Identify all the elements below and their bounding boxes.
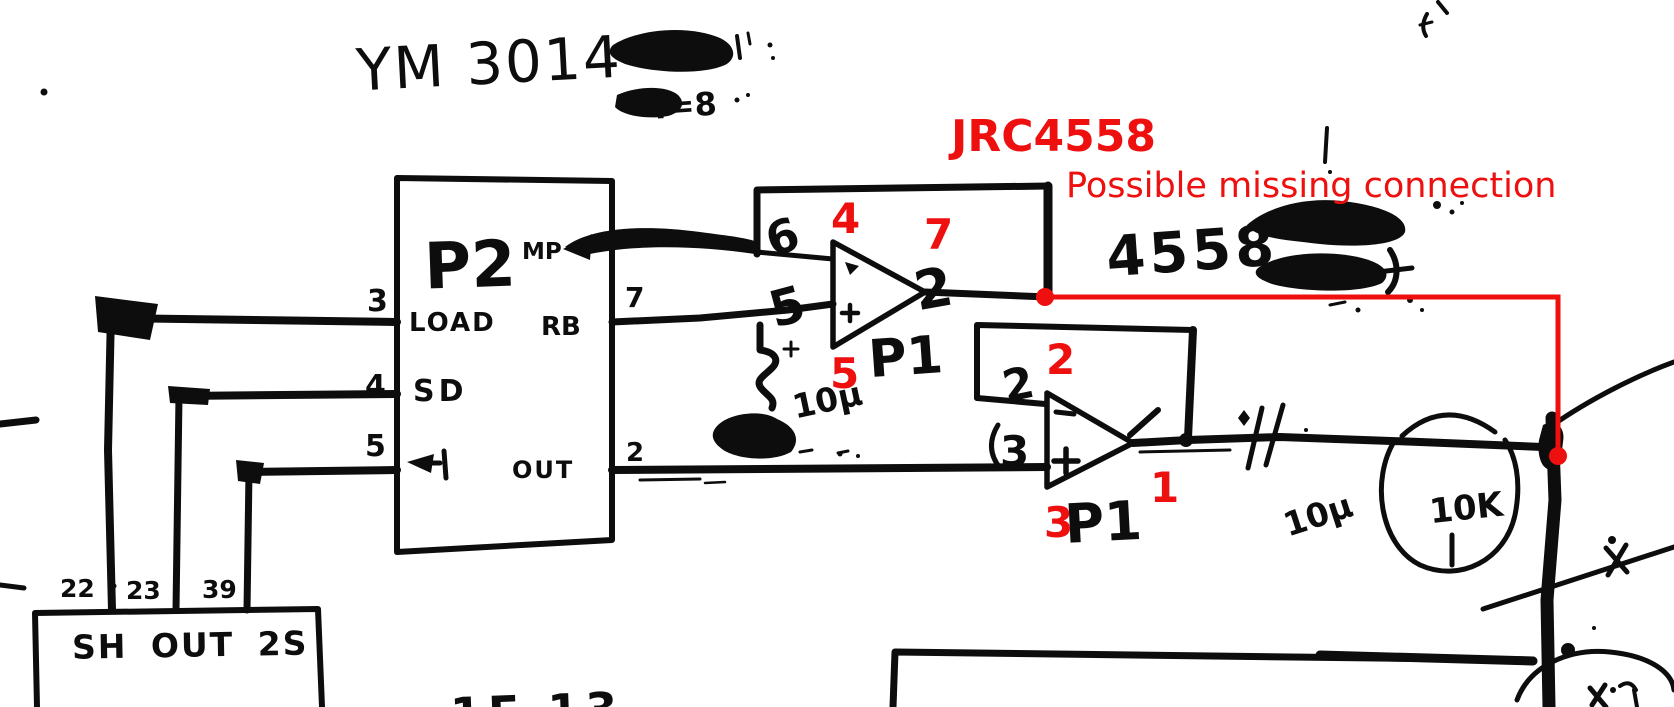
chip-designator: P2 <box>423 227 517 304</box>
shift-box-pin23: 23 <box>126 576 161 605</box>
chip-load-label: LOAD <box>409 308 496 338</box>
blackout-scribble <box>1247 128 1464 313</box>
opamp2-output-wire <box>1133 405 1543 468</box>
resistor-blob: 10K <box>1381 415 1517 571</box>
annotation-pin-op2-noninv: 3 <box>1044 498 1073 547</box>
resistor-value: 10K <box>1427 484 1506 532</box>
opamp2-hw-noninv-pin: 3 <box>1000 427 1029 476</box>
pin1-arrow-mark <box>407 451 446 478</box>
plus-symbol <box>842 305 858 321</box>
capacitor2-value: 10μ <box>1279 486 1358 545</box>
ym3014-chip: P2 MP LOAD RB SD OUT 3 4 5 7 2 <box>365 178 757 552</box>
apex-slash-mark <box>1130 410 1158 435</box>
annotation-pin-op1-noninv: 5 <box>830 349 859 398</box>
shift-box-label: SH OUT 2S <box>72 624 309 667</box>
chip-pin7-label: 7 <box>625 281 644 314</box>
chip-pin4-label: 4 <box>365 369 386 404</box>
annotation-note: Possible missing connection <box>1066 166 1556 206</box>
missing-connection-node-start <box>1036 288 1054 306</box>
chip-rb-label: RB <box>541 312 581 342</box>
opamp2: 2 3 P1 <box>991 357 1158 556</box>
annotation-ic-label: JRC4558 <box>948 111 1156 162</box>
opamp2-label: P1 <box>1063 489 1143 556</box>
schematic-canvas: YM 3014 4=8 P2 MP LOAD RB SD OUT 3 4 5 7… <box>0 0 1674 707</box>
opamp1-hw-out-pin: 2 <box>909 255 957 324</box>
opamp1-hw-noninv-pin: 5 <box>763 274 812 339</box>
scanned-schematic-page: YM 3014 4=8 P2 MP LOAD RB SD OUT 3 4 5 7… <box>0 0 1674 707</box>
paren-mark <box>991 425 1000 468</box>
shift-box-pin39: 39 <box>202 575 237 604</box>
annotation-pin-op2-inv: 2 <box>1046 335 1075 384</box>
chip-mp-label: MP <box>522 239 562 265</box>
pen-mark-top-right <box>1420 2 1447 36</box>
annotation-pin-op1-inv: 4 <box>831 194 860 243</box>
chip-pin2-label: 2 <box>626 438 644 468</box>
speck-top-left <box>41 89 48 96</box>
chip-out-label: OUT <box>512 456 574 484</box>
shift-box-pin22: 22 <box>60 574 95 603</box>
chip-pin3-label: 3 <box>367 284 388 319</box>
pin5-wire <box>236 460 397 610</box>
bottom-rectangle <box>893 652 1533 707</box>
bottom-partial-text: 1F 13 <box>449 682 624 707</box>
plus-symbol <box>1054 449 1078 473</box>
dac-out-wire <box>612 452 1047 484</box>
annotation-pin-op2-out: 1 <box>1150 463 1179 512</box>
missing-connection-node-end <box>1549 447 1567 465</box>
bottom-right-ellipse <box>1517 651 1674 707</box>
scan-edge-stubs <box>0 420 36 588</box>
top-scribble-text: 4=8 <box>644 84 718 127</box>
chip-sd-label: SD <box>413 374 468 409</box>
dac-title: YM 3014 <box>354 23 624 105</box>
chip-pin5-label: 5 <box>365 429 386 464</box>
opamp1-label: P1 <box>867 325 945 390</box>
minus-symbol <box>1056 412 1074 414</box>
annotation-pin-op1-out: 7 <box>924 210 953 259</box>
opamp2-hw-in-pin: 2 <box>998 357 1039 413</box>
missing-connection-wire <box>1045 297 1558 456</box>
mp-scribble-wire <box>563 228 757 260</box>
opamp1-hw-inv-pin: 6 <box>759 206 806 267</box>
